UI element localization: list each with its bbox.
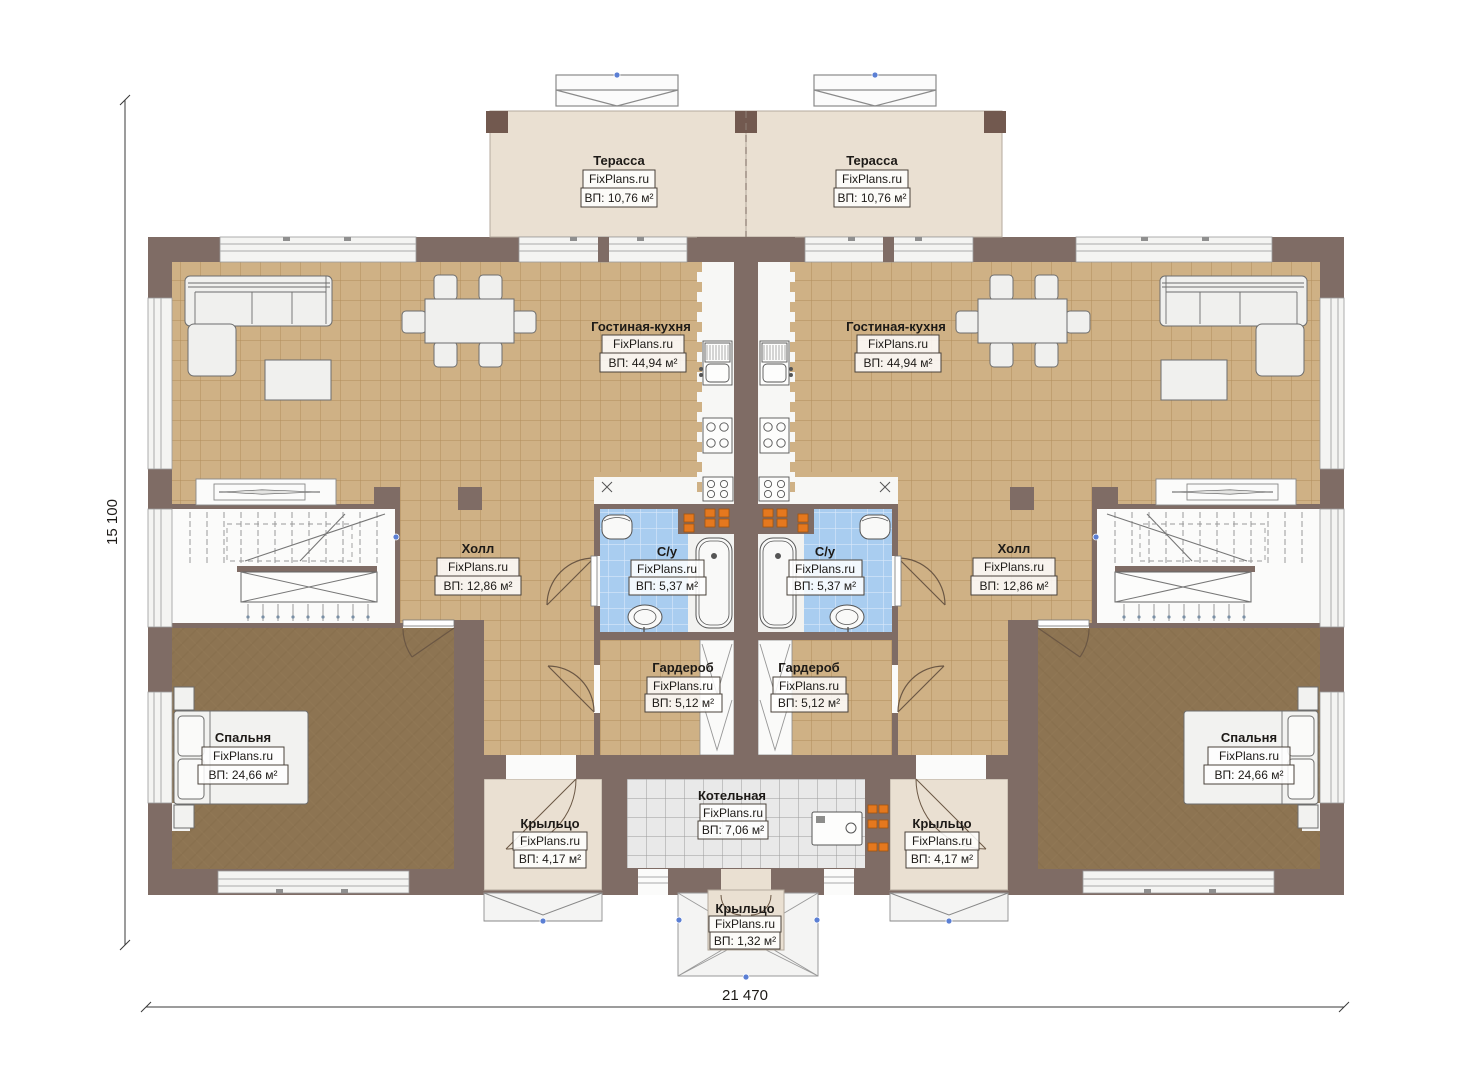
svg-text:FixPlans.ru: FixPlans.ru [213, 749, 273, 763]
svg-text:ВП: 5,37 м²: ВП: 5,37 м² [636, 579, 698, 593]
svg-text:FixPlans.ru: FixPlans.ru [779, 679, 839, 693]
svg-text:Гардероб: Гардероб [652, 660, 713, 675]
svg-text:Спальня: Спальня [1221, 730, 1277, 745]
svg-text:Гардероб: Гардероб [778, 660, 839, 675]
svg-text:ВП: 7,06 м²: ВП: 7,06 м² [702, 823, 764, 837]
svg-text:С/у: С/у [657, 544, 678, 559]
svg-text:FixPlans.ru: FixPlans.ru [795, 562, 855, 576]
svg-text:Терасса: Терасса [846, 153, 898, 168]
svg-text:FixPlans.ru: FixPlans.ru [703, 806, 763, 820]
svg-text:Терасса: Терасса [593, 153, 645, 168]
svg-text:Холл: Холл [998, 541, 1031, 556]
svg-text:FixPlans.ru: FixPlans.ru [637, 562, 697, 576]
svg-text:Крыльцо: Крыльцо [520, 816, 579, 831]
svg-text:ВП: 1,32 м²: ВП: 1,32 м² [714, 934, 776, 948]
svg-text:FixPlans.ru: FixPlans.ru [589, 172, 649, 186]
svg-text:ВП: 24,66 м²: ВП: 24,66 м² [1215, 768, 1284, 782]
svg-text:ВП: 4,17 м²: ВП: 4,17 м² [519, 852, 581, 866]
svg-text:FixPlans.ru: FixPlans.ru [1219, 749, 1279, 763]
svg-text:ВП: 5,37 м²: ВП: 5,37 м² [794, 579, 856, 593]
svg-text:ВП: 44,94 м²: ВП: 44,94 м² [864, 356, 933, 370]
svg-text:С/у: С/у [815, 544, 836, 559]
svg-text:FixPlans.ru: FixPlans.ru [653, 679, 713, 693]
svg-text:ВП: 5,12 м²: ВП: 5,12 м² [778, 696, 840, 710]
svg-text:Гостиная-кухня: Гостиная-кухня [846, 319, 946, 334]
svg-text:ВП: 4,17 м²: ВП: 4,17 м² [911, 852, 973, 866]
svg-text:FixPlans.ru: FixPlans.ru [715, 917, 775, 931]
svg-text:ВП: 44,94 м²: ВП: 44,94 м² [609, 356, 678, 370]
svg-text:FixPlans.ru: FixPlans.ru [520, 834, 580, 848]
svg-text:ВП: 5,12 м²: ВП: 5,12 м² [652, 696, 714, 710]
svg-text:FixPlans.ru: FixPlans.ru [842, 172, 902, 186]
svg-text:FixPlans.ru: FixPlans.ru [613, 337, 673, 351]
svg-text:Крыльцо: Крыльцо [912, 816, 971, 831]
svg-text:Котельная: Котельная [698, 788, 766, 803]
svg-text:21 470: 21 470 [722, 987, 768, 1004]
svg-text:ВП: 10,76 м²: ВП: 10,76 м² [585, 191, 654, 205]
svg-text:FixPlans.ru: FixPlans.ru [448, 560, 508, 574]
svg-text:ВП: 12,86 м²: ВП: 12,86 м² [444, 579, 513, 593]
svg-text:15 100: 15 100 [104, 499, 121, 545]
svg-text:Холл: Холл [462, 541, 495, 556]
svg-text:ВП: 24,66 м²: ВП: 24,66 м² [209, 768, 278, 782]
svg-text:FixPlans.ru: FixPlans.ru [912, 834, 972, 848]
svg-text:ВП: 10,76 м²: ВП: 10,76 м² [838, 191, 907, 205]
svg-text:Крыльцо: Крыльцо [715, 901, 774, 916]
svg-text:FixPlans.ru: FixPlans.ru [868, 337, 928, 351]
svg-text:ВП: 12,86 м²: ВП: 12,86 м² [980, 579, 1049, 593]
svg-text:Спальня: Спальня [215, 730, 271, 745]
svg-text:Гостиная-кухня: Гостиная-кухня [591, 319, 691, 334]
svg-text:FixPlans.ru: FixPlans.ru [984, 560, 1044, 574]
